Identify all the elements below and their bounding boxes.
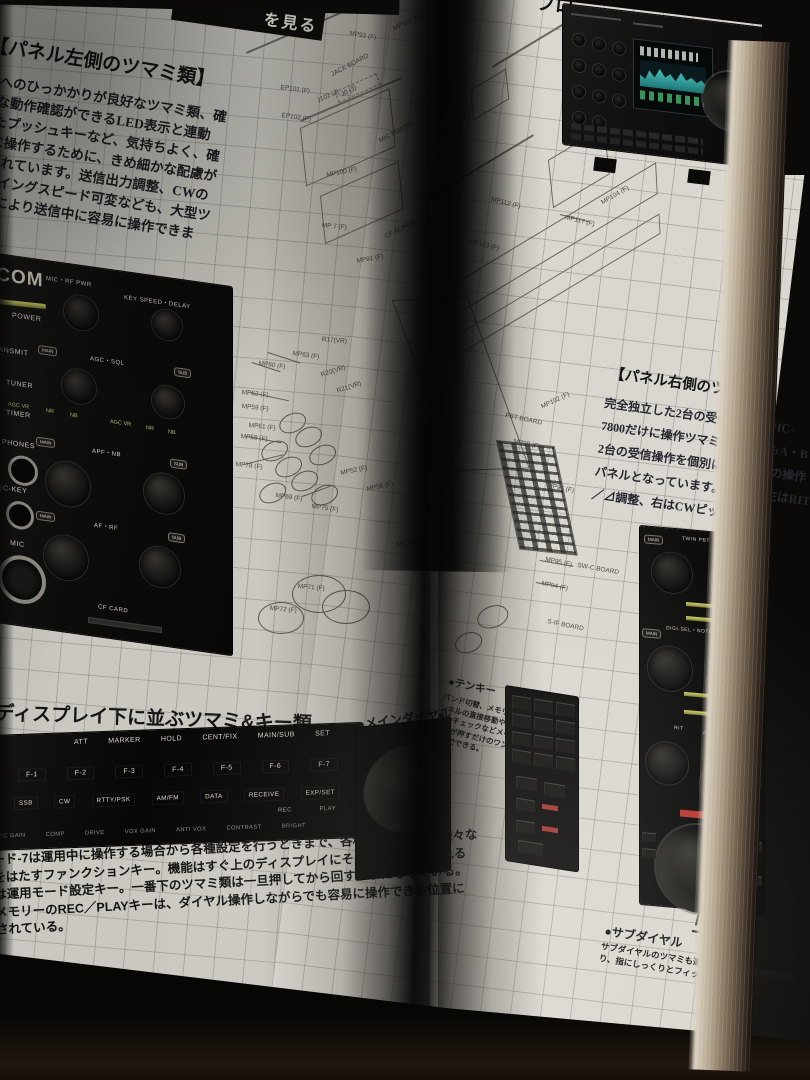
keypad-key — [556, 702, 575, 718]
keypad-key — [516, 820, 535, 835]
spectrum-trace — [640, 60, 706, 94]
indicator-label: NB — [168, 429, 176, 436]
front-small-knob — [593, 38, 605, 51]
selector-chip: MAIN — [644, 534, 663, 545]
function-key-label: F-1 — [18, 768, 46, 782]
function-key-label: F-2 — [67, 766, 95, 780]
mode-key-label: SSB — [14, 796, 38, 810]
diagram-label: MP94 (F) — [541, 580, 569, 592]
strip-row-fn: F-1F-2F-3F-4F-5F-6F-7 — [18, 758, 338, 782]
keypad-key — [556, 738, 575, 754]
mode-key-label: CW — [54, 795, 75, 809]
function-key-label: F-7 — [310, 758, 338, 772]
strip-key-label: HOLD — [161, 735, 182, 743]
strip-key-label: MARKER — [108, 737, 140, 745]
red-key-label — [542, 826, 558, 834]
keypad-key — [534, 698, 553, 714]
keypad-key — [516, 798, 535, 813]
keypad-key — [556, 720, 575, 736]
diagram-label: MP104 (F) — [600, 185, 630, 206]
selector-chip: MAIN — [642, 628, 661, 639]
function-key-label: F-6 — [262, 759, 290, 773]
keypad-key — [534, 716, 553, 732]
mode-key-label: RECEIVE — [244, 788, 284, 802]
side-key — [642, 832, 656, 842]
diagram-label: MP102 (F) — [540, 391, 571, 410]
function-key-label: F-4 — [164, 763, 192, 777]
spectrum-scope — [640, 60, 706, 94]
main-dial-knob — [364, 742, 448, 835]
indicator-label: NR — [146, 425, 154, 432]
diagram-label: S-IF BOARD — [547, 618, 585, 633]
front-small-knob — [593, 64, 605, 77]
keypad-key — [516, 776, 537, 792]
keypad-key — [544, 782, 565, 798]
indicator-label: NB — [70, 412, 78, 419]
front-small-knob — [573, 59, 585, 72]
magazine-spread-photo: LED BOARDMP93 (F)MP113 (F)JACK BOARDJ0 (… — [0, 0, 810, 1080]
strip-row-mem: RECPLAY — [278, 806, 336, 814]
keypad-key — [512, 749, 531, 765]
lcd-display — [633, 38, 713, 118]
keypad-key — [556, 756, 575, 772]
mode-key-label: DATA — [200, 790, 227, 804]
under-knob-label: CONTRAST — [226, 824, 261, 831]
keypad-key — [512, 695, 531, 711]
front-small-knob — [613, 94, 625, 107]
diagram-label: MP96 (F) — [547, 482, 575, 494]
keypad-key — [512, 713, 531, 729]
left-panel-photo: ICOM POWERTRANSMITTUNERTIMERPHONESELEC-K… — [0, 252, 232, 655]
diagram-label: MP98 (F) — [513, 438, 541, 450]
front-small-knob — [573, 85, 585, 98]
strip-key-label: ATT — [74, 739, 88, 746]
radio-foot — [687, 169, 711, 186]
front-text-dash — [571, 13, 621, 21]
indicator-label: AGC VR — [110, 419, 131, 428]
mode-key-label: EXP/SET — [301, 786, 340, 800]
under-knob-label: VOX GAIN — [125, 828, 156, 835]
diagram-label: PBT BOARD — [505, 412, 543, 427]
function-key-label: F-3 — [115, 765, 143, 779]
front-small-knob — [613, 42, 625, 55]
under-knob-label: COMP — [46, 831, 65, 838]
side-key — [642, 848, 656, 858]
keypad-photo — [506, 686, 578, 871]
left-page-edge-shadow — [0, 0, 14, 1080]
memory-key-label: PLAY — [320, 806, 337, 813]
function-key-label: F-5 — [213, 761, 241, 775]
red-key-label — [542, 804, 558, 812]
diagram-label: MP117 (F) — [564, 214, 595, 228]
under-knob-label: ANTI VOX — [176, 826, 206, 833]
strip-key-label: SET — [315, 730, 330, 738]
keypad-key — [534, 752, 553, 768]
under-knob-label: DRIVE — [85, 830, 105, 837]
strip-row-top: ATTMARKERHOLDCENT/FIXMAIN/SUBSET — [74, 730, 330, 746]
front-small-knob — [573, 33, 585, 46]
diagram-label: MP112 (F) — [490, 196, 521, 210]
radio-foot — [593, 157, 617, 174]
frequency-readout — [640, 46, 698, 62]
key-strip-photo: ATTMARKERHOLDCENT/FIXMAIN/SUBSET F-1F-2F… — [0, 723, 362, 850]
mode-key-label: RTTY/PSK — [92, 793, 136, 808]
front-small-knob — [593, 90, 605, 103]
indicator-labels: AGC VRNRNBAGC VRNRNB — [0, 252, 232, 655]
diagram-label: MP103 (F) — [468, 238, 499, 252]
front-text-dash — [633, 22, 663, 28]
front-small-knob — [613, 68, 625, 81]
indicator-label: NR — [46, 408, 54, 415]
diagram-label: SW-C BOARD — [577, 562, 620, 576]
diagram-label: MP95 (F) — [545, 556, 573, 568]
under-knob-label: BRIGHT — [282, 823, 306, 830]
keypad-key — [534, 734, 553, 750]
strip-key-label: MAIN/SUB — [258, 731, 295, 739]
memory-key-label: REC — [278, 807, 292, 813]
keypad-key — [518, 840, 543, 856]
mode-key-label: AM/FM — [152, 791, 184, 805]
keypad-key — [512, 731, 531, 747]
strip-key-label: CENT/FIX — [202, 733, 237, 741]
